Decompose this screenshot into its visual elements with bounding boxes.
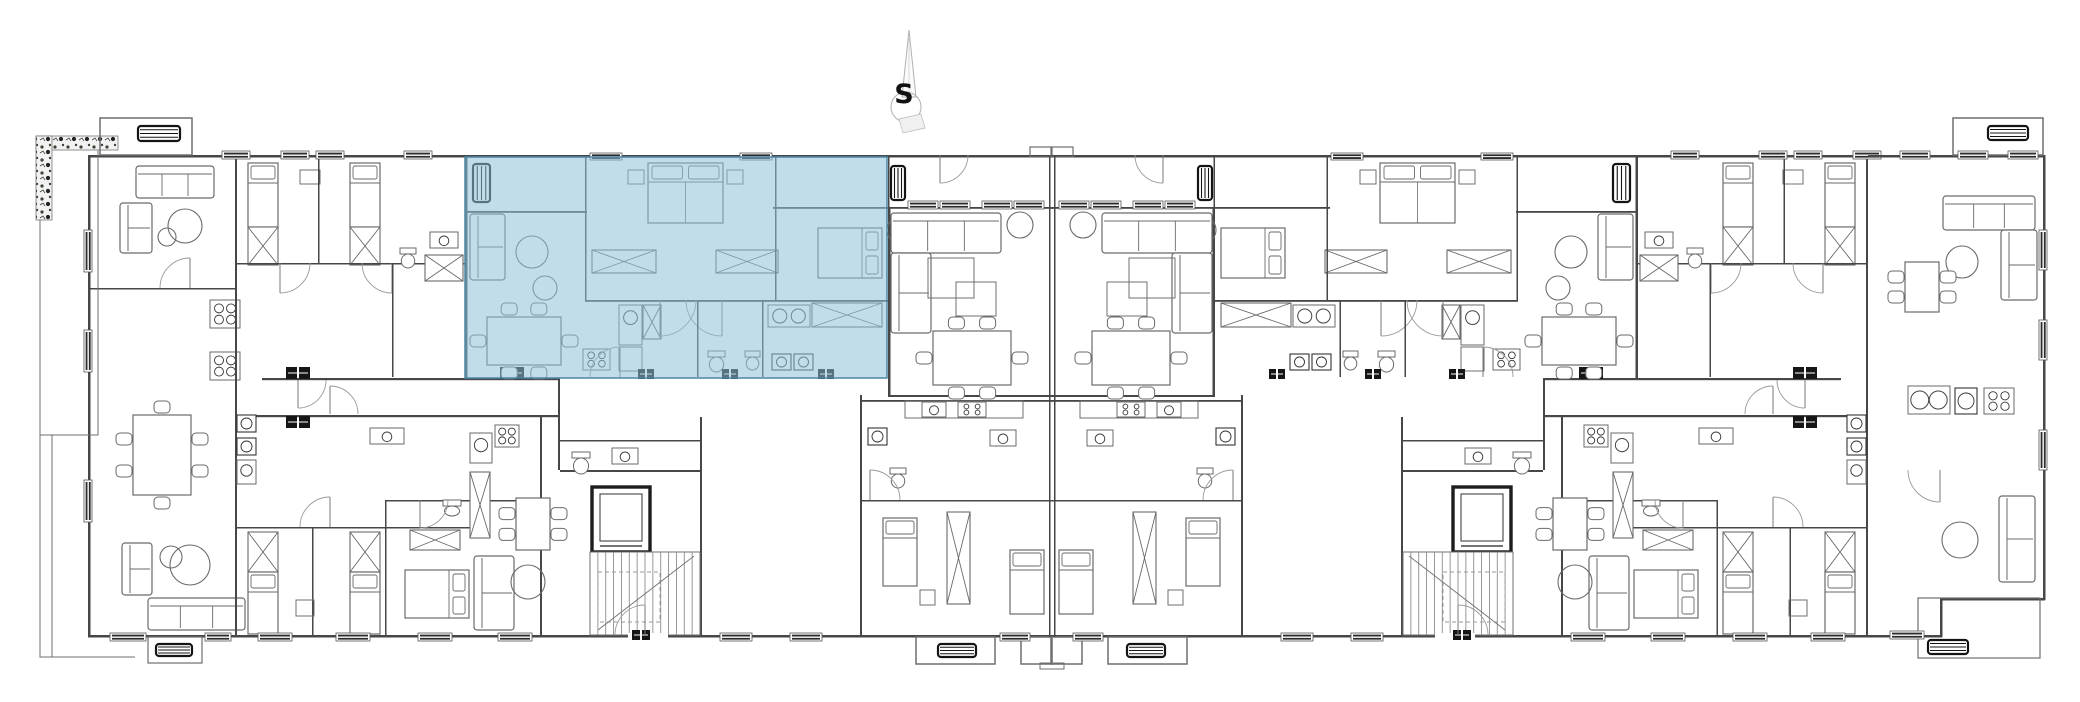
window-marker xyxy=(404,151,432,159)
chair-icon xyxy=(1107,317,1123,329)
outline xyxy=(1360,170,1376,184)
wall xyxy=(235,527,470,529)
window-marker xyxy=(720,633,752,641)
chair-icon xyxy=(1588,528,1604,540)
window-marker xyxy=(1481,153,1513,160)
toilet-icon xyxy=(443,500,461,506)
sink-icon xyxy=(470,433,492,463)
single-bed-icon xyxy=(350,163,380,227)
outline xyxy=(296,600,314,616)
wall xyxy=(1866,155,1868,637)
wall xyxy=(2043,155,2046,600)
wall xyxy=(1717,500,1719,637)
dining-table-icon xyxy=(1553,498,1587,550)
window-marker xyxy=(1811,633,1845,641)
wall xyxy=(88,155,91,637)
window-marker xyxy=(908,201,938,209)
chair-icon xyxy=(1586,367,1602,379)
toilet-icon xyxy=(572,452,590,458)
chair-icon xyxy=(116,465,132,477)
wall xyxy=(1214,157,1216,207)
door-swing-arc xyxy=(1777,380,1805,408)
single-bed-icon xyxy=(1059,550,1093,614)
wall xyxy=(558,378,560,470)
chair-icon xyxy=(1888,271,1904,283)
double-bed-icon xyxy=(405,570,469,618)
chair-icon xyxy=(980,387,996,399)
compass-label: S xyxy=(894,79,913,110)
chair-icon xyxy=(1556,367,1572,379)
window-marker xyxy=(1351,633,1383,641)
sink-icon xyxy=(1293,305,1335,327)
wall xyxy=(235,155,237,637)
table-circle-icon xyxy=(1555,236,1587,268)
chair-icon xyxy=(948,317,964,329)
wall xyxy=(560,440,700,442)
stove-icon xyxy=(958,402,986,417)
washer-icon xyxy=(868,428,887,445)
door-swing-arc xyxy=(280,263,310,293)
chair-icon xyxy=(1536,528,1552,540)
wall xyxy=(1241,395,1243,637)
outline xyxy=(1168,590,1183,605)
window-marker xyxy=(258,633,292,641)
toilet-icon xyxy=(1688,254,1701,268)
wall xyxy=(1543,378,1545,470)
sofa-icon xyxy=(891,213,1001,253)
chair-icon xyxy=(1940,271,1956,283)
window-marker xyxy=(1331,153,1363,160)
window-marker xyxy=(1900,151,1930,159)
chair-icon xyxy=(154,497,170,509)
wall xyxy=(312,527,314,637)
window-marker xyxy=(940,201,970,209)
door-swing-arc xyxy=(1711,263,1741,293)
window-marker xyxy=(1671,151,1699,159)
chair-icon xyxy=(499,508,515,520)
wall xyxy=(1051,395,1215,397)
chair-icon xyxy=(1536,508,1552,520)
single-bed-icon xyxy=(1723,572,1753,634)
door-swing-arc xyxy=(1773,497,1803,527)
outline xyxy=(928,258,974,298)
window-marker xyxy=(84,480,92,522)
chair-icon xyxy=(192,465,208,477)
chair-icon xyxy=(1525,335,1541,347)
dining-table-icon xyxy=(516,498,550,550)
outline xyxy=(300,170,320,184)
chair-icon xyxy=(154,401,170,413)
elevator-icon xyxy=(1453,487,1511,552)
window-marker xyxy=(1000,633,1030,641)
table-circle-icon xyxy=(1942,522,1978,558)
chair-icon xyxy=(1171,352,1187,364)
table-circle-icon xyxy=(511,565,545,599)
outline xyxy=(40,435,52,657)
door-swing-arc xyxy=(362,263,392,293)
window-marker xyxy=(84,230,92,272)
chair-icon xyxy=(551,528,567,540)
sofa-icon xyxy=(1943,196,2035,230)
window-marker xyxy=(1014,201,1044,209)
table-circle-icon xyxy=(160,546,182,568)
wall xyxy=(1403,440,1543,442)
window-marker xyxy=(1651,633,1685,641)
single-bed-icon xyxy=(350,572,380,634)
wall xyxy=(1517,157,1519,212)
chair-icon xyxy=(1107,387,1123,399)
outline xyxy=(1461,347,1484,371)
wall xyxy=(860,500,1052,502)
toilet-icon xyxy=(401,254,414,268)
toilet-icon xyxy=(573,458,588,474)
wall xyxy=(1051,155,1868,158)
window-marker xyxy=(1759,151,1787,159)
door-swing-arc xyxy=(298,380,326,408)
dining-table-icon xyxy=(933,331,1011,385)
chair-icon xyxy=(916,352,932,364)
washer-icon xyxy=(1216,428,1235,445)
door-swing-arc xyxy=(1745,386,1773,414)
chair-icon xyxy=(1617,335,1633,347)
window-marker xyxy=(498,633,532,641)
wall xyxy=(392,263,394,377)
single-bed-icon xyxy=(1010,550,1044,614)
double-bed-icon xyxy=(1221,228,1285,278)
single-bed-icon xyxy=(1825,163,1855,227)
toilet-icon xyxy=(1379,357,1393,372)
wall xyxy=(1405,300,1407,377)
single-bed-icon xyxy=(248,572,278,634)
toilet-icon xyxy=(1642,500,1660,506)
outline xyxy=(956,282,996,316)
window-marker xyxy=(1571,633,1605,641)
window-marker xyxy=(84,330,92,372)
dining-table-icon xyxy=(1542,317,1616,365)
table-circle-icon xyxy=(1558,565,1592,599)
wall xyxy=(385,500,387,637)
window-marker xyxy=(1958,151,1988,159)
wall xyxy=(1517,211,1519,300)
sink-icon xyxy=(1611,433,1633,463)
stove-icon xyxy=(495,425,519,447)
wall xyxy=(1054,155,1056,637)
window-marker xyxy=(418,633,452,641)
wall xyxy=(888,395,1052,397)
door-swing-arc xyxy=(1135,155,1163,183)
dining-table-icon xyxy=(1092,331,1170,385)
window-marker xyxy=(1890,631,1924,639)
washer-icon xyxy=(1847,415,1866,432)
door-swing-arc xyxy=(160,258,190,288)
sofa-icon xyxy=(148,598,245,630)
stove-icon xyxy=(1493,349,1520,370)
chair-icon xyxy=(1139,317,1155,329)
window-marker xyxy=(1073,633,1103,641)
chair-icon xyxy=(1012,352,1028,364)
sofa-icon xyxy=(136,166,214,198)
floor-plan-svg: S xyxy=(0,0,2080,702)
wall xyxy=(1340,300,1342,377)
chair-icon xyxy=(1588,508,1604,520)
window-marker xyxy=(1133,201,1163,209)
window-marker xyxy=(1733,633,1767,641)
highlighted-apartment[interactable] xyxy=(465,157,887,378)
window-marker xyxy=(982,201,1012,209)
wall xyxy=(1516,211,1638,213)
window-marker xyxy=(1281,633,1313,641)
wall xyxy=(888,157,890,207)
toilet-icon xyxy=(400,248,416,254)
chair-icon xyxy=(116,433,132,445)
window-marker xyxy=(336,633,370,641)
wall xyxy=(1633,527,1868,529)
washer-icon xyxy=(237,438,256,455)
stove-icon xyxy=(1584,425,1608,447)
outline xyxy=(1129,258,1175,298)
chair-icon xyxy=(1556,303,1572,315)
window-marker xyxy=(2039,320,2047,360)
washer-icon xyxy=(237,415,256,432)
outline xyxy=(1459,170,1475,184)
double-bed-icon xyxy=(1634,570,1698,618)
wall xyxy=(1636,157,1639,379)
single-bed-icon xyxy=(1825,572,1855,634)
wall xyxy=(1784,155,1786,263)
single-bed-icon xyxy=(248,163,278,227)
dining-table-icon xyxy=(133,415,191,495)
wall xyxy=(860,395,862,637)
stove-icon xyxy=(1984,388,2014,414)
toilet-icon xyxy=(1197,468,1213,474)
window-marker xyxy=(2008,151,2038,159)
washer-icon xyxy=(1290,354,1309,370)
wall xyxy=(88,288,235,290)
stove-icon xyxy=(1117,402,1145,417)
chair-icon xyxy=(1888,291,1904,303)
toilet-icon xyxy=(1514,458,1529,474)
sink-icon xyxy=(1847,460,1866,484)
window-marker xyxy=(316,151,344,159)
outline xyxy=(1789,600,1807,616)
sink-icon xyxy=(237,460,256,484)
sofa-icon xyxy=(1102,213,1212,253)
single-bed-icon xyxy=(1723,163,1753,227)
toilet-icon xyxy=(1378,351,1395,357)
window-marker xyxy=(110,633,146,641)
chair-icon xyxy=(1139,387,1155,399)
outline xyxy=(920,590,935,605)
wall xyxy=(1790,527,1792,637)
table-circle-icon xyxy=(1007,212,1033,238)
wall xyxy=(1710,263,1712,377)
window-marker xyxy=(222,151,250,159)
toilet-icon xyxy=(1344,357,1357,370)
chair-icon xyxy=(980,317,996,329)
chair-icon xyxy=(551,508,567,520)
wall xyxy=(1940,598,1943,637)
chair-icon xyxy=(948,387,964,399)
chair-icon xyxy=(1075,352,1091,364)
single-bed-icon xyxy=(1186,518,1220,586)
window-marker xyxy=(2039,230,2047,270)
door-swing-arc xyxy=(330,386,358,414)
window-marker xyxy=(790,633,822,641)
single-bed-icon xyxy=(883,518,917,586)
wall xyxy=(318,155,320,263)
wall xyxy=(1051,500,1243,502)
chair-icon xyxy=(192,433,208,445)
outline xyxy=(1783,170,1803,184)
door-swing-arc xyxy=(1793,263,1823,293)
chair-icon xyxy=(1586,303,1602,315)
table-circle-icon xyxy=(168,209,202,243)
floor-plan-viewport: S xyxy=(0,0,2080,702)
toilet-icon xyxy=(1513,452,1531,458)
elevator-icon xyxy=(592,487,650,552)
toilet-icon xyxy=(1343,351,1358,357)
door-swing-arc xyxy=(940,155,968,183)
compass-base-icon xyxy=(899,114,925,133)
wall xyxy=(1327,207,1329,300)
table-circle-icon xyxy=(170,545,210,585)
door-swing-arc xyxy=(300,497,330,527)
toilet-icon xyxy=(1687,248,1703,254)
window-marker xyxy=(1091,201,1121,209)
wall xyxy=(1327,157,1329,208)
table-circle-icon xyxy=(158,228,176,246)
toilet-icon xyxy=(890,468,906,474)
window-marker xyxy=(2039,430,2047,470)
wall xyxy=(1215,300,1518,302)
window-marker xyxy=(1165,201,1195,209)
dining-table-icon xyxy=(1905,262,1939,312)
window-marker xyxy=(281,151,309,159)
table-circle-icon xyxy=(1546,276,1570,300)
washer-icon xyxy=(1847,438,1866,455)
washer-icon xyxy=(1312,354,1331,370)
vegetation-strip xyxy=(36,136,52,220)
window-marker xyxy=(205,633,231,641)
window-marker xyxy=(1794,151,1822,159)
chair-icon xyxy=(499,528,515,540)
wall xyxy=(1049,155,1051,637)
table-circle-icon xyxy=(1070,212,1096,238)
chair-icon xyxy=(1940,291,1956,303)
window-marker xyxy=(1059,201,1089,209)
outline xyxy=(1107,282,1147,316)
door-swing-arc xyxy=(1908,470,1940,502)
